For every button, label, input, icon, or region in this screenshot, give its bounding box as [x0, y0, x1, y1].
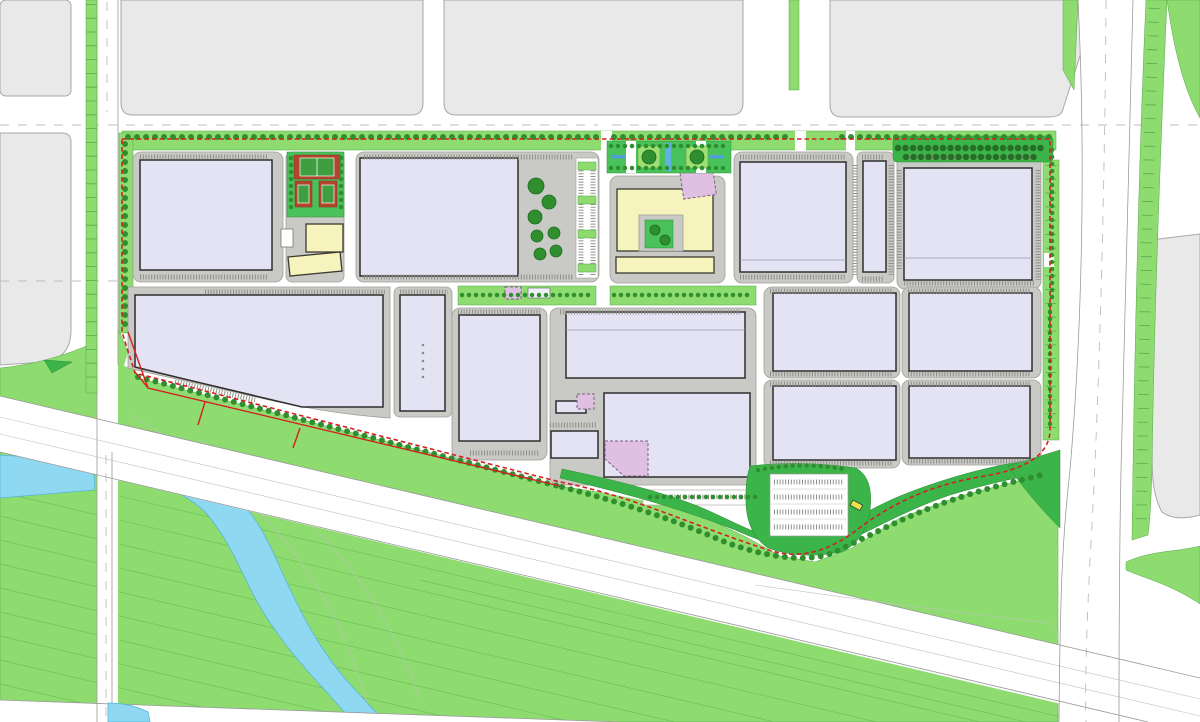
warehouse-building: [566, 312, 745, 378]
tree: [650, 225, 660, 235]
warehouse-building: [909, 386, 1030, 458]
warehouse-building: [740, 162, 846, 272]
warehouse-building: [459, 315, 540, 441]
parking-island: [578, 230, 596, 238]
utility-structure: [281, 229, 293, 247]
tree: [531, 230, 543, 242]
warehouse-building: [773, 386, 896, 460]
amenity-building: [288, 252, 342, 276]
tree: [642, 150, 656, 164]
road-vertical-west: [97, 0, 118, 722]
median-strip: [86, 0, 97, 393]
sports-area: [281, 152, 344, 276]
entry-gap: [795, 131, 806, 151]
tree: [528, 178, 544, 194]
tree: [690, 150, 704, 164]
warehouse-building: [140, 160, 272, 270]
small-pink-building: [577, 394, 594, 409]
water-feature: [611, 155, 625, 159]
tree: [548, 227, 560, 239]
site-plan-canvas: [0, 0, 1200, 722]
parking-island: [578, 196, 596, 204]
warehouse-building: [863, 161, 886, 272]
small-building: [551, 431, 598, 458]
tree: [528, 210, 542, 224]
context-parcel: [0, 0, 71, 96]
context-parcel: [0, 133, 71, 365]
tree: [542, 195, 556, 209]
basketball-court-surface: [322, 185, 334, 203]
warehouse-building: [904, 168, 1032, 280]
context-parcel: [830, 0, 1098, 117]
road-vertical-east: [1059, 0, 1133, 722]
parking-island: [578, 264, 596, 272]
amenity-building: [306, 224, 343, 252]
parking-island: [578, 162, 596, 170]
warehouse-building: [909, 293, 1032, 371]
entry-gap: [846, 131, 855, 151]
site-plan-page: [0, 0, 1200, 722]
corner-green: [1167, 0, 1200, 118]
warehouse-building: [360, 158, 518, 276]
context-parcel: [444, 0, 743, 115]
entrance-plaza: [607, 141, 731, 173]
water-feature: [710, 155, 724, 159]
basketball-court-surface: [298, 185, 309, 203]
median-strip: [789, 0, 799, 90]
tree: [534, 248, 546, 260]
context-parcel: [121, 0, 423, 115]
context-parcel: [1150, 234, 1200, 518]
office-bar-building: [616, 257, 714, 273]
corner-green: [1126, 546, 1200, 604]
tree: [660, 235, 670, 245]
tree: [550, 245, 562, 257]
warehouse-building: [773, 293, 896, 371]
